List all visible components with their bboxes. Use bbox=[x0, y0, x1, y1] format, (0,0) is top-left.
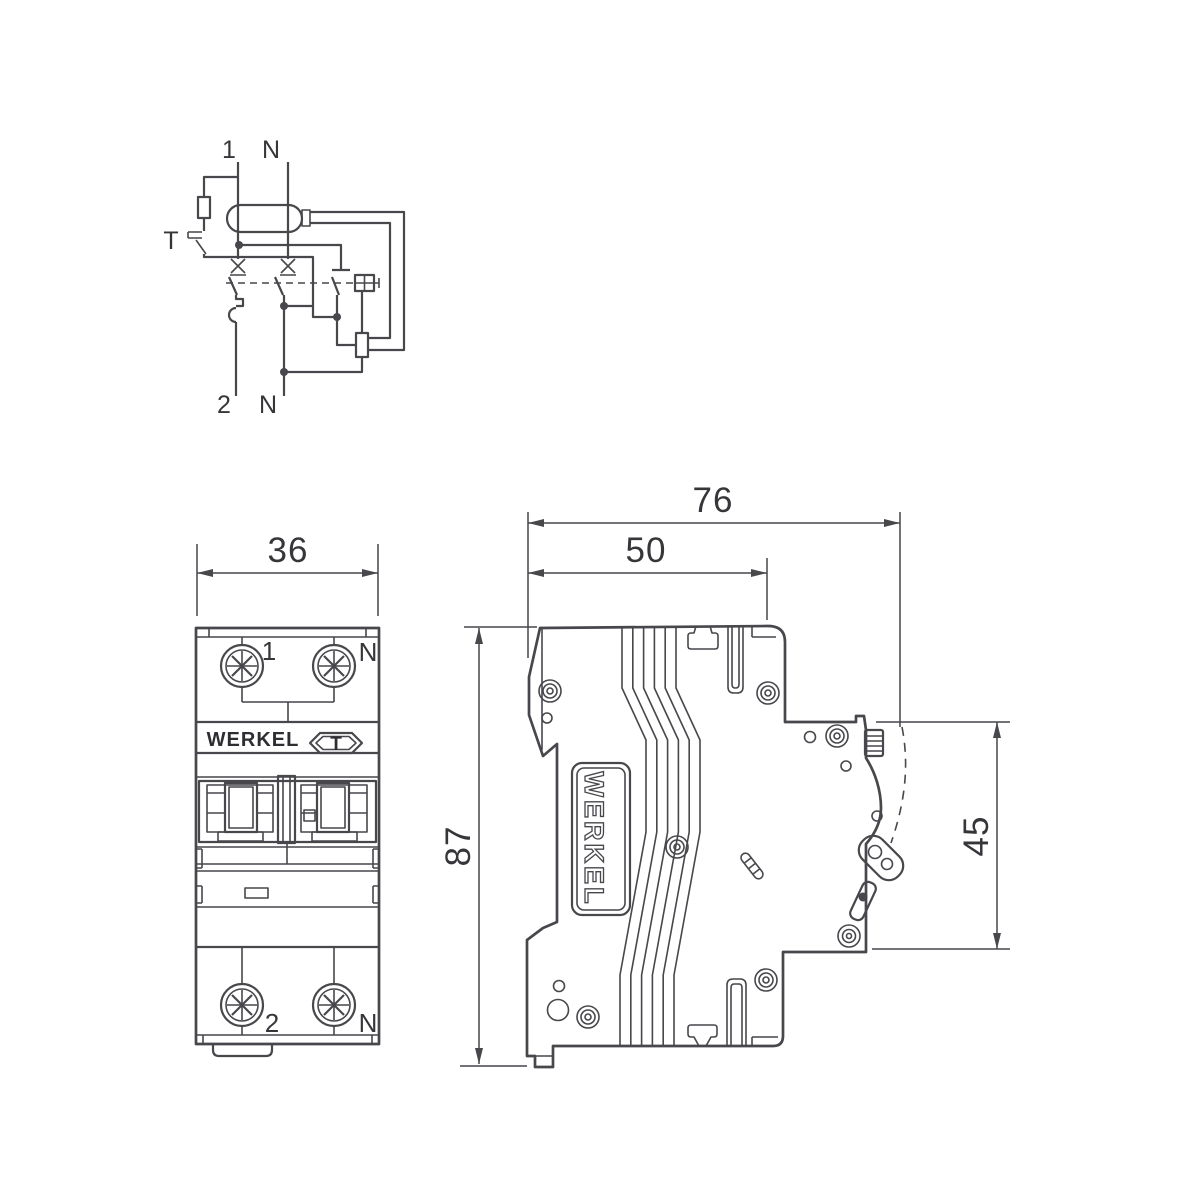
side-view: 76 50 87 45 bbox=[439, 481, 1010, 1067]
side-depth-body-dimension: 50 bbox=[528, 531, 767, 620]
terminal-screw-top-right bbox=[313, 645, 355, 687]
diagram-label-test: T bbox=[163, 227, 178, 255]
side-rear-height-value: 45 bbox=[957, 816, 996, 857]
terminal-screw-bottom-left bbox=[221, 984, 263, 1026]
front-label-terminal-1: 1 bbox=[262, 636, 276, 666]
spring-element bbox=[739, 851, 765, 880]
technical-drawing-canvas: 1 N T 2 N 36 1 N bbox=[0, 0, 1200, 1200]
side-height-dimension: 87 bbox=[439, 627, 537, 1066]
marking-window bbox=[245, 888, 268, 898]
terminal-screw-top-left bbox=[221, 645, 263, 687]
diagram-label-line-out: 2 bbox=[217, 391, 231, 419]
test-button[interactable]: T bbox=[310, 733, 362, 755]
front-width-dimension: 36 bbox=[197, 531, 378, 616]
drawing-svg: 1 N T 2 N 36 1 N bbox=[0, 0, 1200, 1200]
side-rear-height-dimension: 45 bbox=[872, 722, 1010, 949]
side-ribs bbox=[620, 627, 700, 1046]
front-width-value: 36 bbox=[268, 531, 309, 570]
lever-link-arm bbox=[848, 880, 878, 922]
wiring-diagram: 1 N T 2 N bbox=[163, 136, 404, 419]
front-label-terminal-n-top: N bbox=[359, 637, 378, 667]
diagram-label-neutral-out: N bbox=[259, 391, 277, 419]
side-depth-total-dimension: 76 bbox=[528, 481, 900, 727]
side-depth-body-value: 50 bbox=[626, 531, 667, 570]
diagram-label-neutral-in: N bbox=[262, 136, 280, 164]
front-view: 36 1 N WERKEL T bbox=[196, 531, 379, 1056]
din-release-tab bbox=[213, 1044, 272, 1056]
toggle-lever[interactable] bbox=[853, 830, 908, 885]
test-button-label: T bbox=[330, 734, 342, 755]
serrated-block bbox=[865, 730, 883, 756]
front-label-terminal-n-bottom: N bbox=[359, 1008, 378, 1038]
terminal-screw-bottom-right bbox=[313, 984, 355, 1026]
side-brand-text: WERKEL bbox=[579, 772, 609, 907]
front-label-terminal-2: 2 bbox=[265, 1008, 279, 1038]
side-height-value: 87 bbox=[439, 826, 478, 867]
side-depth-total-value: 76 bbox=[693, 481, 734, 520]
front-brand-text: WERKEL bbox=[207, 729, 300, 751]
diagram-label-line-in: 1 bbox=[222, 136, 236, 164]
side-brand-label: WERKEL bbox=[572, 763, 630, 915]
lever-travel-arc bbox=[891, 727, 906, 843]
toggle-switch-area[interactable] bbox=[199, 776, 376, 843]
